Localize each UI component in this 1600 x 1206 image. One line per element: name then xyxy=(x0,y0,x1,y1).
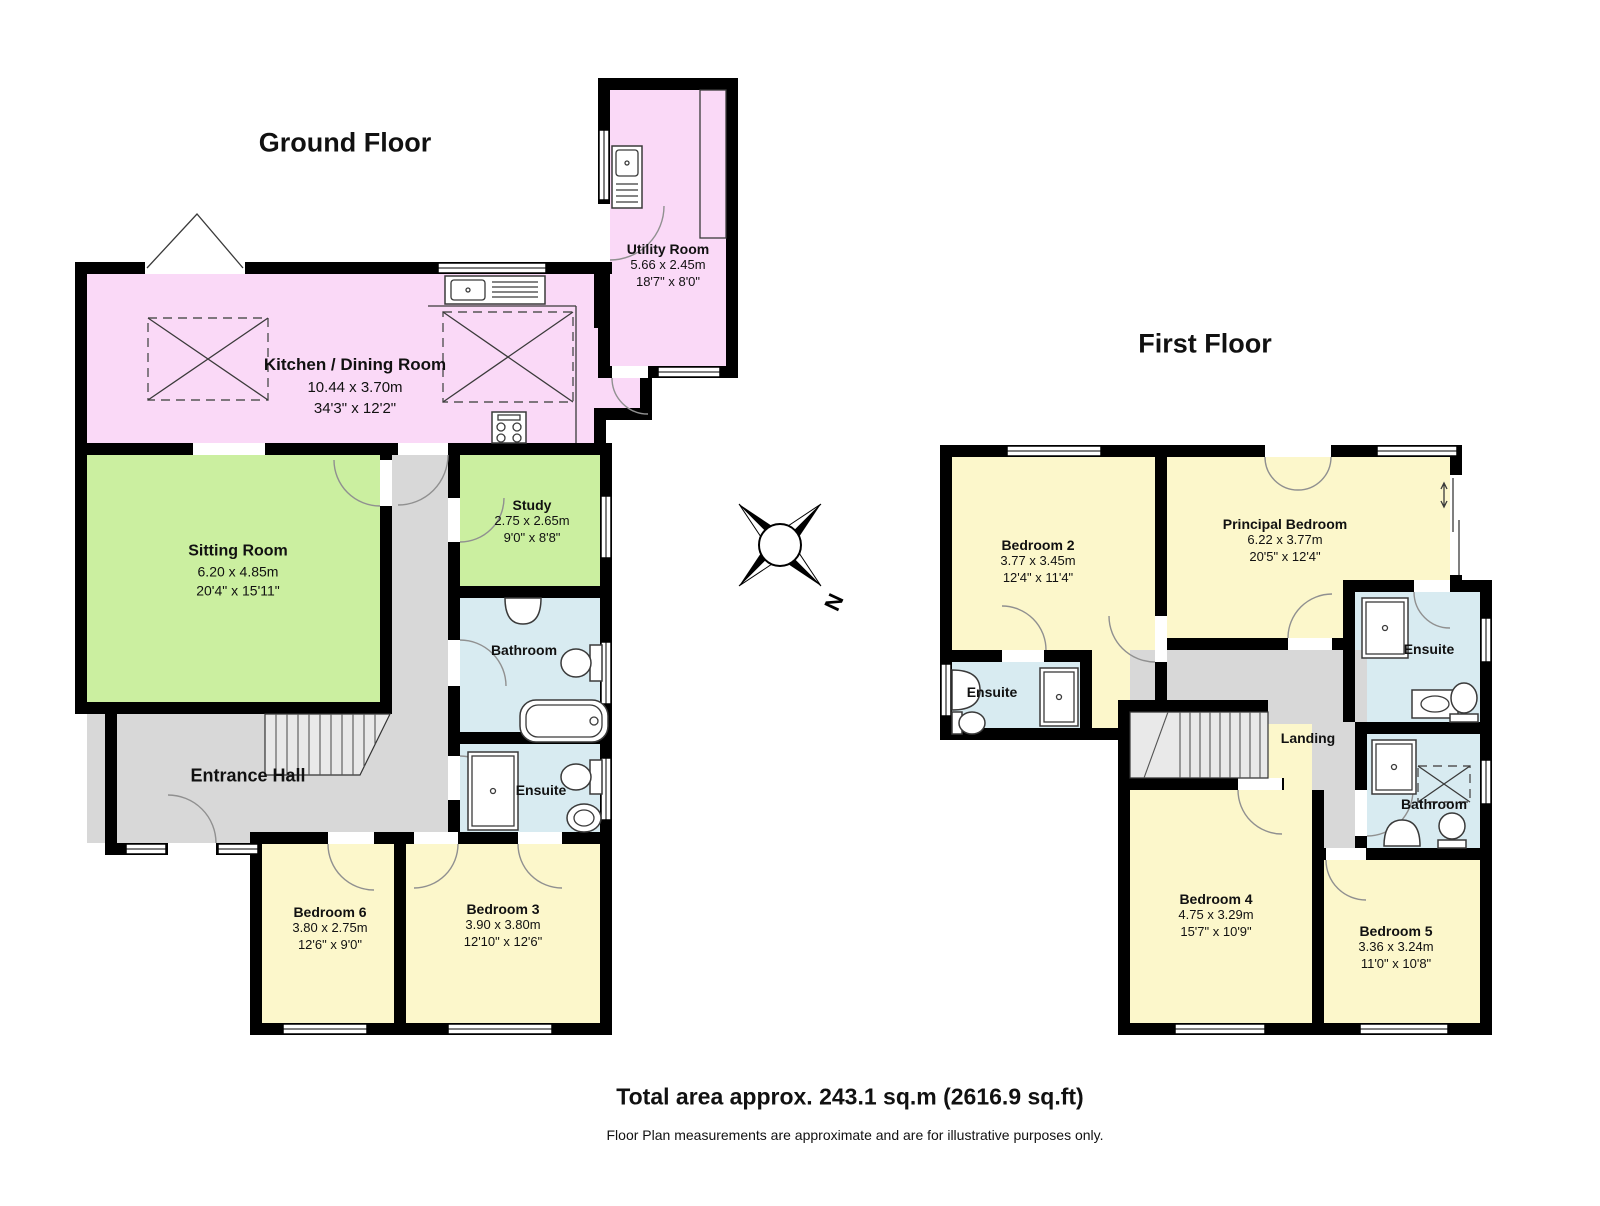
compass-rose-icon: N xyxy=(739,504,848,615)
first-floor-title: First Floor xyxy=(1138,329,1272,360)
room-label-bedroom3: Bedroom 3 3.90 x 3.80m 12'10" x 12'6" xyxy=(464,901,543,951)
room-label-bedroom4: Bedroom 4 4.75 x 3.29m 15'7" x 10'9" xyxy=(1178,891,1253,941)
first-floor-stairs xyxy=(1130,712,1268,778)
room-label-ensuite-bed2: Ensuite xyxy=(967,684,1018,700)
room-label-bedroom5: Bedroom 5 3.36 x 3.24m 11'0" x 10'8" xyxy=(1358,923,1433,973)
floorplan-canvas: N Ground Floor First Floor Utility Room … xyxy=(0,0,1600,1206)
room-label-bathroom-gf: Bathroom xyxy=(491,642,557,658)
room-label-bathroom-ff: Bathroom xyxy=(1401,796,1467,812)
room-label-entrance-hall: Entrance Hall xyxy=(190,766,305,787)
floorplan-geometry: N xyxy=(0,0,1600,1206)
ground-floor-title: Ground Floor xyxy=(259,128,431,159)
ground-floor-plan xyxy=(75,78,738,1035)
room-label-landing: Landing xyxy=(1281,730,1335,746)
room-label-kitchen: Kitchen / Dining Room 10.44 x 3.70m 34'3… xyxy=(264,354,446,420)
room-label-principal-bedroom: Principal Bedroom 6.22 x 3.77m 20'5" x 1… xyxy=(1223,516,1347,566)
total-area-text: Total area approx. 243.1 sq.m (2616.9 sq… xyxy=(616,1084,1083,1111)
disclaimer-text: Floor Plan measurements are approximate … xyxy=(607,1127,1104,1143)
room-label-sitting: Sitting Room 6.20 x 4.85m 20'4" x 15'11" xyxy=(188,540,288,601)
room-label-bedroom6: Bedroom 6 3.80 x 2.75m 12'6" x 9'0" xyxy=(292,904,367,954)
room-label-ensuite-principal: Ensuite xyxy=(1404,641,1455,657)
room-label-ensuite-gf: Ensuite xyxy=(516,782,567,798)
room-label-study: Study 2.75 x 2.65m 9'0" x 8'8" xyxy=(494,497,569,547)
room-label-utility: Utility Room 5.66 x 2.45m 18'7" x 8'0" xyxy=(627,241,709,291)
room-label-bedroom2: Bedroom 2 3.77 x 3.45m 12'4" x 11'4" xyxy=(1000,537,1075,587)
compass-north-label: N xyxy=(819,590,848,615)
